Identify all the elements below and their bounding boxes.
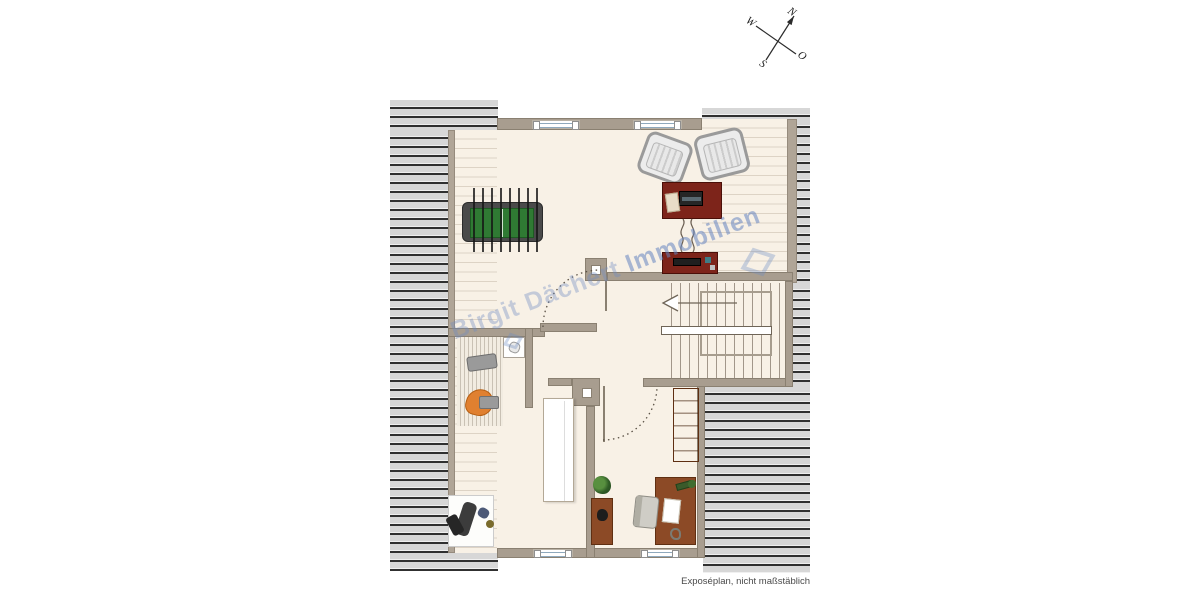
- wall-hall-top: [540, 323, 597, 332]
- console-table: [662, 182, 722, 219]
- desk-item: [670, 528, 681, 540]
- cabinet-object: [597, 509, 608, 521]
- roof-area-right-mid: [793, 283, 810, 386]
- wall-stair-south: [643, 378, 793, 387]
- side-cabinet: [591, 498, 613, 545]
- knee-wall-left: [448, 130, 455, 553]
- knee-wall-right: [787, 119, 797, 283]
- roof-area-top-left: [390, 100, 498, 130]
- desk: [655, 477, 696, 545]
- wall-bathroom-right: [525, 328, 533, 408]
- plan-footnote: Exposéplan, nicht maßstäblich: [555, 576, 810, 587]
- office-chair: [632, 495, 659, 529]
- wardrobe-divider: [564, 401, 565, 501]
- roof-area-right-upper: [797, 119, 810, 283]
- compass-label-south: S: [757, 58, 768, 71]
- desk-plant: [688, 480, 696, 488]
- door-leaf-office: [603, 386, 605, 442]
- chair-backrest: [633, 496, 642, 526]
- stair-railing: [700, 291, 772, 356]
- window-top-left: [532, 120, 580, 129]
- floor-plan: Birgit Dächert Immobilien N W S O Exposé…: [0, 0, 1200, 600]
- papers: [665, 192, 681, 213]
- stair-handrail: [661, 326, 772, 335]
- compass-label-west: W: [743, 14, 757, 29]
- compass-rose: N W S O: [722, 2, 817, 80]
- plant: [593, 476, 611, 494]
- laptop: [679, 191, 703, 206]
- foosball-rods: [466, 188, 538, 252]
- roof-area-bottom-left: [390, 553, 498, 571]
- wardrobe: [543, 398, 574, 502]
- bookshelf: [673, 388, 699, 462]
- equipment-detail: [486, 520, 494, 528]
- roof-area-top-right: [702, 108, 810, 119]
- window-bottom-right: [640, 549, 680, 557]
- wall-stair-right: [785, 281, 793, 387]
- chimney-shaft: [582, 388, 592, 398]
- chimney-lower: [572, 378, 600, 406]
- bath-seat-cushion: [479, 396, 499, 409]
- media-device: [710, 265, 715, 270]
- window-bottom-left: [533, 549, 573, 557]
- roof-area-left: [390, 130, 448, 553]
- compass-label-east: O: [795, 49, 808, 63]
- window-top-right: [633, 120, 682, 129]
- wall-hall-stub: [548, 378, 572, 386]
- laptop-screen: [682, 197, 701, 201]
- roof-area-bottom-right: [703, 386, 810, 573]
- paper-sheet: [662, 498, 681, 524]
- compass-label-north: N: [785, 5, 798, 19]
- media-device: [705, 257, 711, 263]
